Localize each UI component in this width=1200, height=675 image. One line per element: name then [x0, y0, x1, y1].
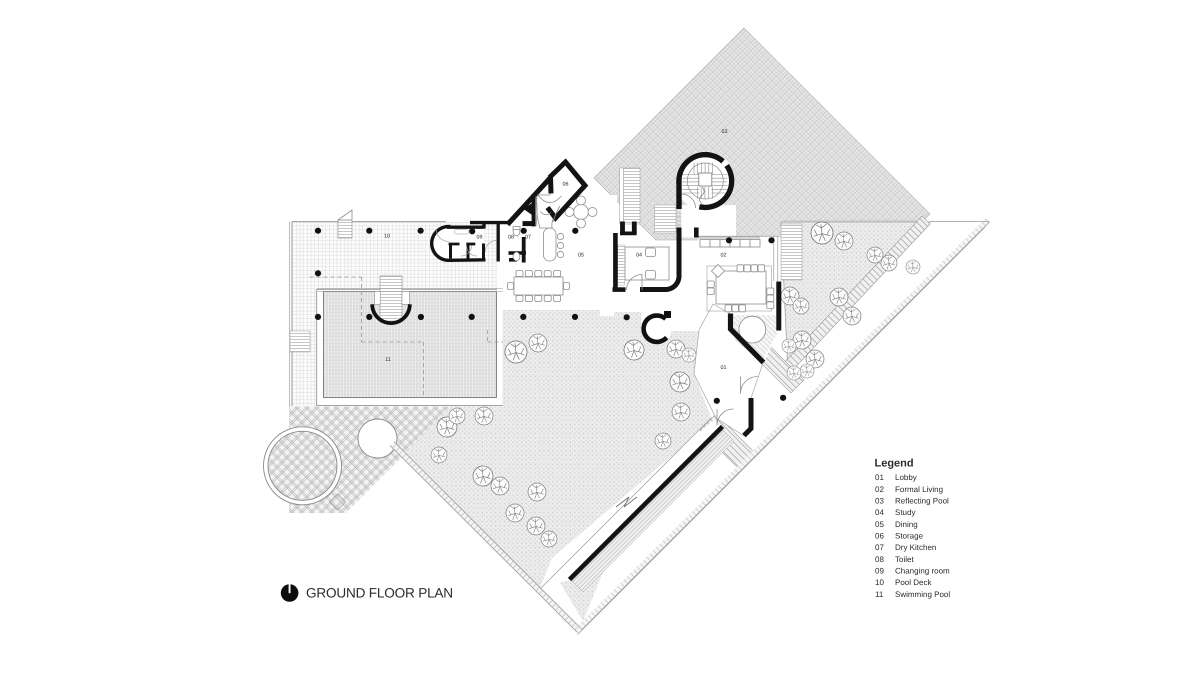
- svg-text:04: 04: [636, 253, 642, 259]
- svg-text:Storage: Storage: [895, 532, 924, 541]
- svg-text:02: 02: [875, 485, 884, 494]
- svg-text:GROUND FLOOR PLAN: GROUND FLOOR PLAN: [306, 586, 453, 601]
- svg-text:10: 10: [384, 234, 390, 240]
- svg-text:Pool Deck: Pool Deck: [895, 578, 932, 587]
- svg-text:07: 07: [875, 543, 884, 552]
- svg-text:Swimming Pool: Swimming Pool: [895, 590, 950, 599]
- svg-text:09: 09: [875, 567, 884, 576]
- svg-text:08: 08: [875, 555, 884, 564]
- svg-text:Dining: Dining: [895, 520, 918, 529]
- svg-text:06: 06: [563, 182, 569, 188]
- svg-text:Formal Living: Formal Living: [895, 485, 943, 494]
- svg-text:Toilet: Toilet: [895, 555, 914, 564]
- svg-text:06: 06: [875, 532, 884, 541]
- svg-text:Dry Kitchen: Dry Kitchen: [895, 543, 936, 552]
- svg-text:01: 01: [875, 473, 884, 482]
- svg-text:10: 10: [875, 578, 884, 587]
- svg-text:01: 01: [721, 365, 727, 371]
- svg-text:11: 11: [385, 357, 391, 363]
- svg-text:Legend: Legend: [875, 458, 914, 470]
- svg-text:Study: Study: [895, 508, 915, 517]
- svg-text:Lobby: Lobby: [895, 473, 917, 482]
- svg-text:Reflecting Pool: Reflecting Pool: [895, 497, 949, 506]
- svg-text:11: 11: [875, 590, 884, 599]
- svg-text:05: 05: [578, 253, 584, 259]
- svg-text:05: 05: [875, 520, 884, 529]
- svg-text:04: 04: [875, 508, 884, 517]
- svg-text:08: 08: [508, 235, 514, 241]
- svg-text:03: 03: [875, 497, 884, 506]
- svg-text:02: 02: [721, 253, 727, 259]
- svg-text:Changing room: Changing room: [895, 567, 950, 576]
- svg-text:09: 09: [477, 235, 483, 241]
- svg-text:07: 07: [525, 235, 531, 241]
- svg-text:03: 03: [722, 129, 728, 135]
